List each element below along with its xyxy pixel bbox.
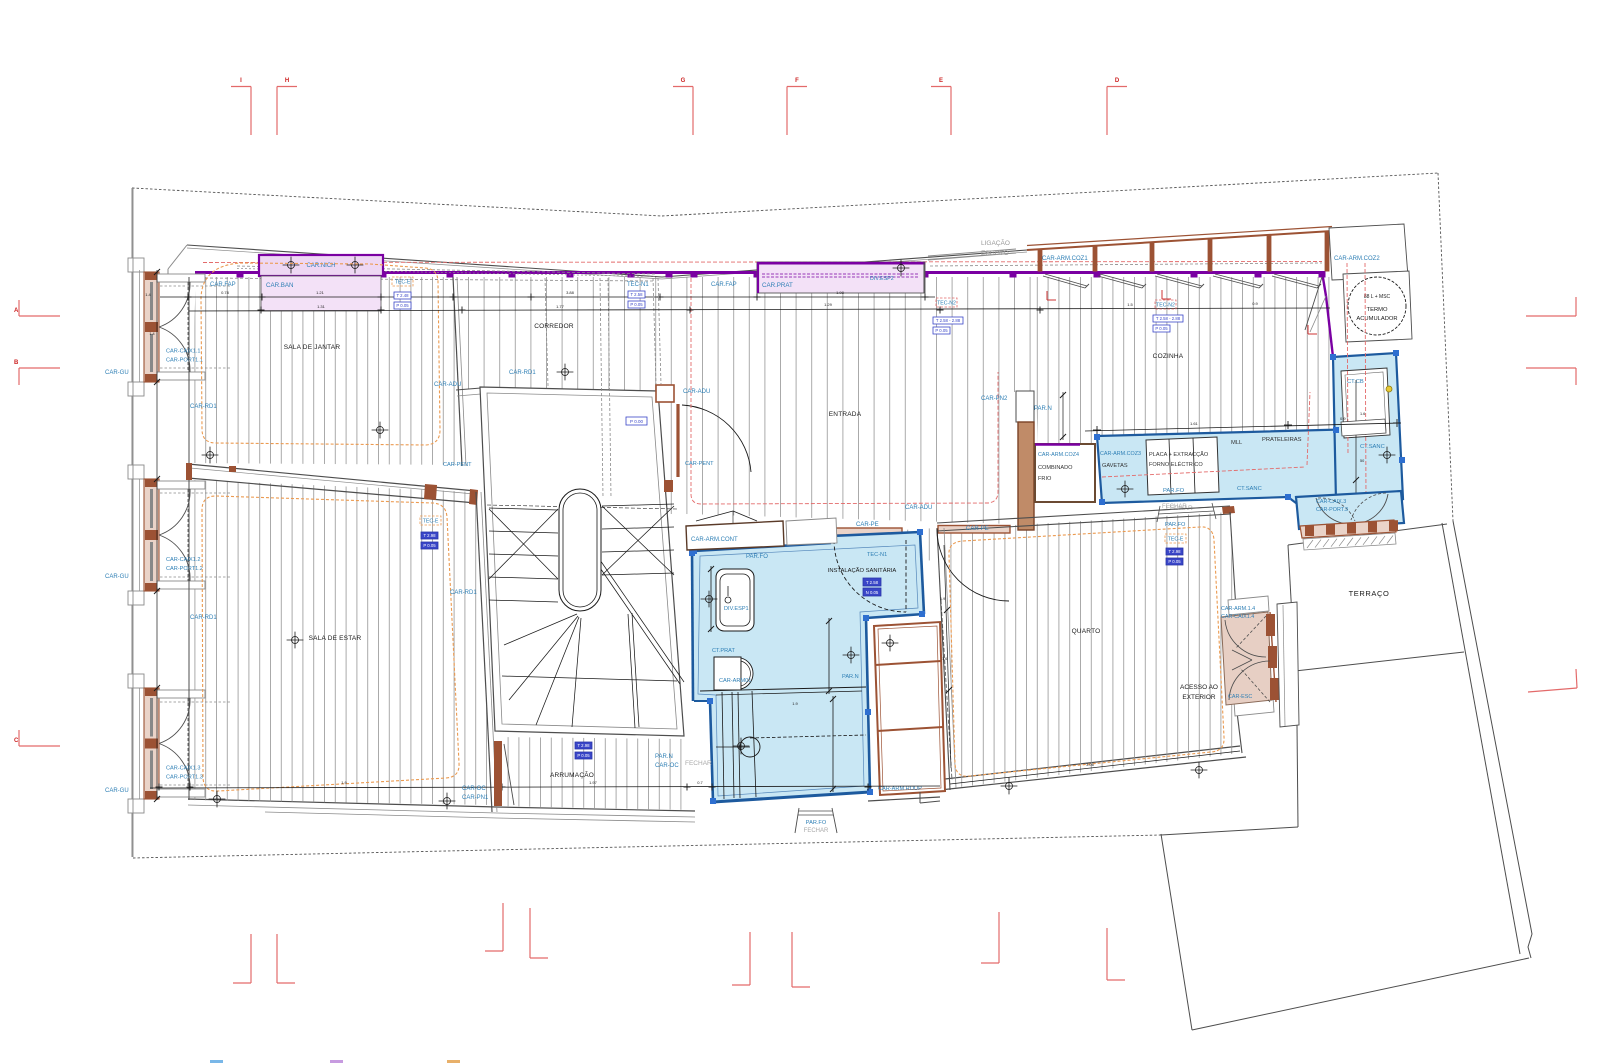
svg-text:TEC-N1: TEC-N1 [627,282,649,288]
svg-text:CAR-GU: CAR-GU [105,574,129,580]
svg-text:0.9: 0.9 [1252,301,1258,306]
svg-text:CAR-PE: CAR-PE [966,526,989,532]
svg-text:CAR-PORT1.2: CAR-PORT1.2 [166,566,203,572]
svg-text:CT.SANC: CT.SANC [1360,444,1385,450]
svg-text:CAR-ARM.ROUP: CAR-ARM.ROUP [878,786,922,792]
svg-text:P 0.00: P 0.00 [630,419,643,424]
svg-text:ACUMULADOR: ACUMULADOR [1356,316,1397,322]
svg-text:TEC-E: TEC-E [395,279,411,285]
svg-text:CAR-ARM.COZ3: CAR-ARM.COZ3 [1100,451,1141,457]
svg-text:CT.SANC: CT.SANC [1237,486,1262,492]
svg-text:TEC-N2: TEC-N2 [1156,302,1175,308]
svg-text:CAR-CAIX1.4: CAR-CAIX1.4 [1221,614,1254,620]
svg-text:PAR.FO: PAR.FO [806,820,827,826]
svg-text:FRIO: FRIO [1038,476,1052,482]
svg-text:CAR.FAP: CAR.FAP [711,282,737,288]
svg-text:1.6: 1.6 [1360,412,1365,416]
svg-text:1.98: 1.98 [836,290,845,295]
svg-text:PAR.N: PAR.N [842,674,859,680]
svg-text:CAR-RD1: CAR-RD1 [190,615,217,621]
svg-text:INSTALAÇÃO SANITÁRIA: INSTALAÇÃO SANITÁRIA [828,567,897,574]
svg-text:P 0.05: P 0.05 [630,302,643,307]
svg-text:1.4: 1.4 [149,332,154,336]
svg-text:0.78: 0.78 [221,290,230,295]
svg-text:1.6: 1.6 [942,657,947,661]
svg-text:COMBINADO: COMBINADO [1038,465,1073,471]
svg-text:CAR-ARM.1.4: CAR-ARM.1.4 [1221,606,1255,612]
svg-text:PAR.N: PAR.N [1034,406,1052,412]
svg-text:DIV.ESP2: DIV.ESP2 [870,276,894,282]
svg-text:CT.PRAT: CT.PRAT [712,648,735,654]
svg-text:CAR-ARM.COZ1: CAR-ARM.COZ1 [1042,256,1088,262]
svg-text:CAR-RD1: CAR-RD1 [450,590,477,596]
svg-text:TEC-E: TEC-E [1168,536,1184,542]
svg-text:ARRUMAÇÃO: ARRUMAÇÃO [550,770,594,779]
svg-text:CAR-PN1: CAR-PN1 [462,795,489,801]
svg-text:SALA DE JANTAR: SALA DE JANTAR [284,344,341,351]
svg-text:F: F [795,78,799,84]
svg-text:88 L + MSC: 88 L + MSC [1364,294,1391,300]
svg-text:CAR-CAIX.3: CAR-CAIX.3 [1316,499,1346,505]
svg-text:PAR.FO: PAR.FO [1163,488,1185,494]
svg-text:CORREDOR: CORREDOR [534,323,574,330]
svg-text:P 0.05: P 0.05 [935,328,948,333]
svg-text:1.31: 1.31 [317,304,326,309]
svg-text:COZINHA: COZINHA [1153,353,1184,360]
svg-text:FECHAR: FECHAR [804,828,829,834]
svg-text:CAR-ADU: CAR-ADU [434,382,461,388]
svg-text:T 2.48: T 2.48 [396,293,409,298]
svg-text:1.4: 1.4 [145,292,151,297]
svg-text:CT.CB: CT.CB [1347,379,1364,385]
svg-text:T 2.98: T 2.98 [423,533,436,538]
svg-text:TEC-N1: TEC-N1 [867,552,887,558]
svg-text:1.21: 1.21 [316,290,325,295]
svg-text:CAR-PE: CAR-PE [856,522,879,528]
svg-text:CAR-PORT.3: CAR-PORT.3 [1316,507,1348,513]
svg-text:CAR-ADU: CAR-ADU [683,389,710,395]
svg-text:DIV.ESP1: DIV.ESP1 [724,606,749,612]
svg-text:T 2.98: T 2.98 [1168,549,1181,554]
svg-text:SALA DE ESTAR: SALA DE ESTAR [309,635,362,642]
svg-text:CAR-OC: CAR-OC [462,786,486,792]
svg-text:1.9: 1.9 [341,780,347,785]
svg-text:H: H [285,78,289,84]
svg-text:LIGAÇÃO: LIGAÇÃO [981,238,1010,247]
svg-text:CAR-ESC: CAR-ESC [1228,694,1252,700]
svg-text:CAR-RD1: CAR-RD1 [509,370,536,376]
svg-text:T 2.98: T 2.98 [577,743,590,748]
svg-text:CAR-OC: CAR-OC [655,763,679,769]
svg-text:1.29: 1.29 [824,302,833,307]
svg-text:P 0.05: P 0.05 [1155,326,1168,331]
svg-text:ENTRADA: ENTRADA [829,411,862,418]
svg-text:FORNO ELÉCTRICO: FORNO ELÉCTRICO [1149,461,1203,468]
svg-text:P 0.05: P 0.05 [1168,559,1181,564]
svg-text:G: G [681,78,686,84]
svg-text:MLL: MLL [1231,440,1243,446]
svg-text:1.9: 1.9 [940,597,945,601]
svg-text:CAR-PENT: CAR-PENT [443,462,472,468]
svg-text:CAR-CAIX1.2: CAR-CAIX1.2 [166,557,201,563]
svg-text:CAR.PRAT: CAR.PRAT [762,282,793,289]
svg-text:PAR.FO: PAR.FO [746,554,768,560]
svg-text:CAR.FAP: CAR.FAP [210,282,236,288]
svg-text:ESGOTO: ESGOTO [981,250,1009,257]
svg-text:CAR-PORT1.3: CAR-PORT1.3 [166,774,203,780]
svg-text:N 0.05: N 0.05 [866,590,879,595]
svg-text:B: B [14,360,19,366]
svg-text:1.61: 1.61 [1190,421,1199,426]
svg-text:50: 50 [1360,459,1364,463]
svg-text:CAR-ARM01: CAR-ARM01 [719,678,751,684]
svg-text:EXTERIOR: EXTERIOR [1182,694,1216,701]
svg-text:3.06: 3.06 [1086,762,1095,767]
svg-text:TERRAÇO: TERRAÇO [1349,589,1390,598]
svg-text:PAR.N: PAR.N [655,754,673,760]
svg-text:CAR.BAN: CAR.BAN [266,282,294,289]
svg-text:CAR-PN2: CAR-PN2 [981,396,1008,402]
svg-text:TEC-E: TEC-E [423,518,439,524]
svg-text:0.7: 0.7 [697,780,703,785]
svg-text:CAR-GU: CAR-GU [105,788,129,794]
svg-text:P 0.05: P 0.05 [423,543,436,548]
svg-text:CAR-CAIX1.3: CAR-CAIX1.3 [166,765,201,771]
svg-text:P 0.05: P 0.05 [396,303,409,308]
svg-text:1.5: 1.5 [1127,302,1133,307]
svg-text:CAR-ARM.COZ2: CAR-ARM.COZ2 [1334,256,1380,262]
svg-text:CAR-ADU: CAR-ADU [905,505,932,511]
svg-text:CAR-CAIX1.1: CAR-CAIX1.1 [166,349,201,355]
svg-text:TERMO: TERMO [1367,307,1388,313]
svg-text:CAR-PENT: CAR-PENT [685,461,714,467]
svg-text:D: D [1115,78,1120,84]
svg-text:PAR.FO: PAR.FO [1165,522,1186,528]
svg-text:PLACA + EXTRACÇÃO: PLACA + EXTRACÇÃO [1149,451,1209,458]
svg-text:T 2.58: T 2.58 [866,580,879,585]
svg-text:1.9: 1.9 [792,701,798,706]
svg-text:FECHAR: FECHAR [685,760,712,767]
svg-text:E: E [939,78,943,84]
svg-text:T 2.58 - 2.88: T 2.58 - 2.88 [1156,316,1181,321]
svg-text:PRATELEIRAS: PRATELEIRAS [1262,437,1302,443]
svg-text:QUARTO: QUARTO [1072,628,1101,635]
svg-text:GAVETAS: GAVETAS [1102,463,1128,469]
svg-text:A: A [14,308,19,314]
svg-text:CAR-ARM.CONT: CAR-ARM.CONT [691,537,738,543]
svg-text:CAR-GU: CAR-GU [105,370,129,376]
svg-text:CAR-RD1: CAR-RD1 [190,404,217,410]
svg-text:CAR-PORT1.1: CAR-PORT1.1 [166,358,203,364]
svg-text:ACESSO AO: ACESSO AO [1180,684,1218,691]
svg-text:1.77: 1.77 [556,304,565,309]
svg-text:T 2.58: T 2.58 [630,292,643,297]
svg-text:C: C [14,738,19,744]
svg-text:T 2.58 - 2.88: T 2.58 - 2.88 [936,318,961,323]
svg-text:CAR-ARM.COZ4: CAR-ARM.COZ4 [1038,452,1079,458]
svg-text:0.9: 0.9 [1340,416,1346,421]
svg-text:P 0.05: P 0.05 [577,753,590,758]
svg-text:TEC-N2: TEC-N2 [937,300,956,306]
svg-text:3.88: 3.88 [566,290,575,295]
svg-text:1.97: 1.97 [589,780,598,785]
